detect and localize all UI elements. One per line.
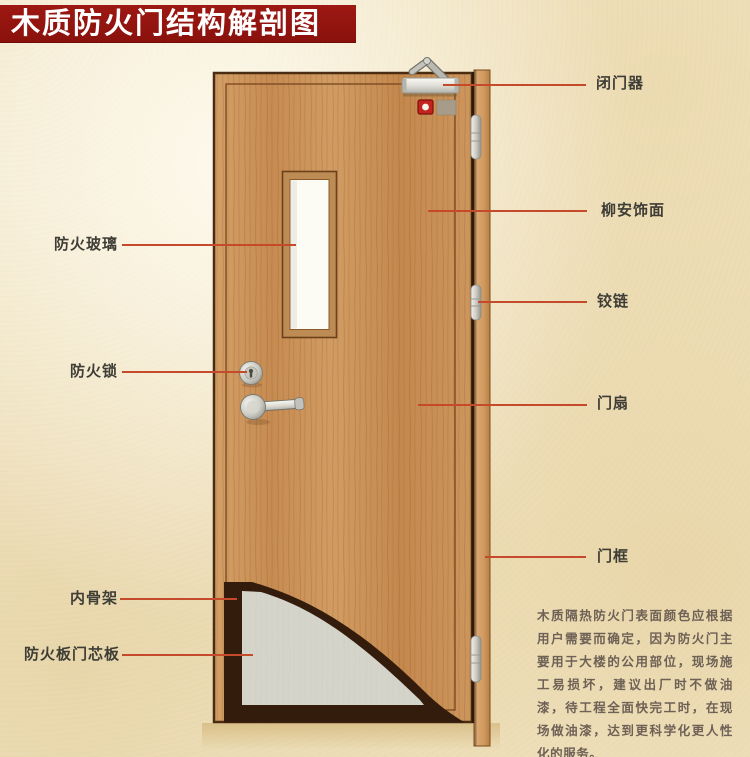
door-gap [472, 72, 474, 723]
leader-line-lauan-veneer [428, 210, 587, 212]
hinge-bottom [471, 636, 481, 682]
label-fire-board-core: 防火板门芯板 [24, 647, 120, 663]
leader-line-fire-glass [122, 244, 296, 246]
leader-line-door-closer [443, 84, 586, 86]
label-door-closer: 闭门器 [596, 76, 644, 92]
label-inner-skeleton: 内骨架 [70, 591, 118, 607]
label-hinge: 铰链 [597, 294, 629, 310]
label-lauan-veneer: 柳安饰面 [601, 203, 665, 219]
leader-line-inner-skeleton [120, 598, 237, 600]
fire-glass-window [283, 172, 337, 338]
leader-line-door-frame [485, 556, 586, 558]
leader-line-fire-board-core [122, 654, 253, 656]
leader-line-door-leaf [418, 404, 587, 406]
label-fire-glass: 防火玻璃 [54, 237, 118, 253]
hinge-top [471, 115, 481, 159]
leader-line-fire-lock [122, 371, 247, 373]
floor-shadow [202, 723, 500, 750]
product-note: 木质隔热防火门表面颜色应根据用户需要而确定，因为防火门主要用于大楼的公用部位，现… [537, 605, 733, 757]
label-door-frame: 门框 [597, 549, 629, 565]
wall-plate [437, 100, 456, 115]
alarm-indicator [418, 100, 433, 114]
label-door-leaf: 门扇 [597, 396, 629, 412]
leader-line-hinge [478, 301, 587, 303]
fire-door-diagram: 木质防火门结构解剖图 [0, 0, 750, 757]
label-fire-lock: 防火锁 [70, 364, 118, 380]
